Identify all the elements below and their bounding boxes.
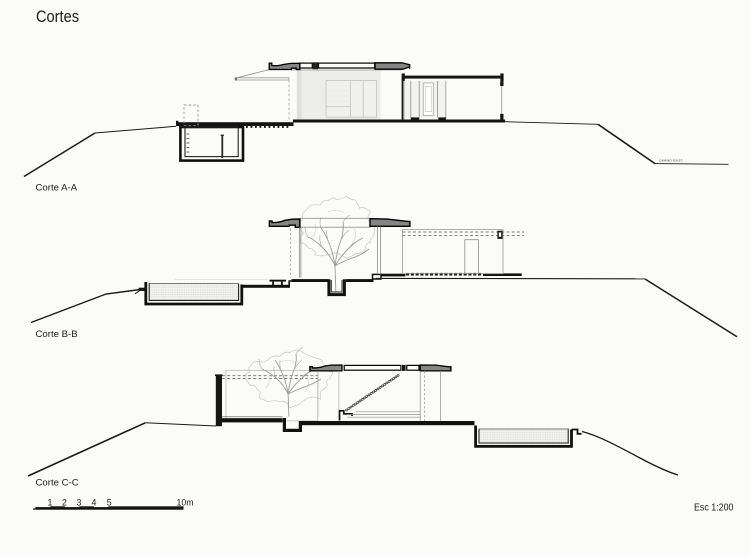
svg-text:1: 1 — [48, 498, 53, 508]
svg-text:Corte B-B: Corte B-B — [36, 329, 78, 340]
svg-text:2: 2 — [62, 498, 67, 508]
svg-text:Corte A-A: Corte A-A — [36, 183, 78, 194]
svg-text:Corte C-C: Corte C-C — [36, 478, 79, 489]
svg-text:4: 4 — [92, 498, 97, 508]
svg-text:5: 5 — [107, 498, 112, 508]
svg-text:Cortes: Cortes — [36, 7, 79, 26]
svg-text:CAMINO EXIST.: CAMINO EXIST. — [659, 159, 683, 163]
svg-text:3: 3 — [77, 498, 82, 508]
svg-text:10m: 10m — [176, 498, 193, 508]
svg-text:Esc 1:200: Esc 1:200 — [694, 503, 734, 514]
